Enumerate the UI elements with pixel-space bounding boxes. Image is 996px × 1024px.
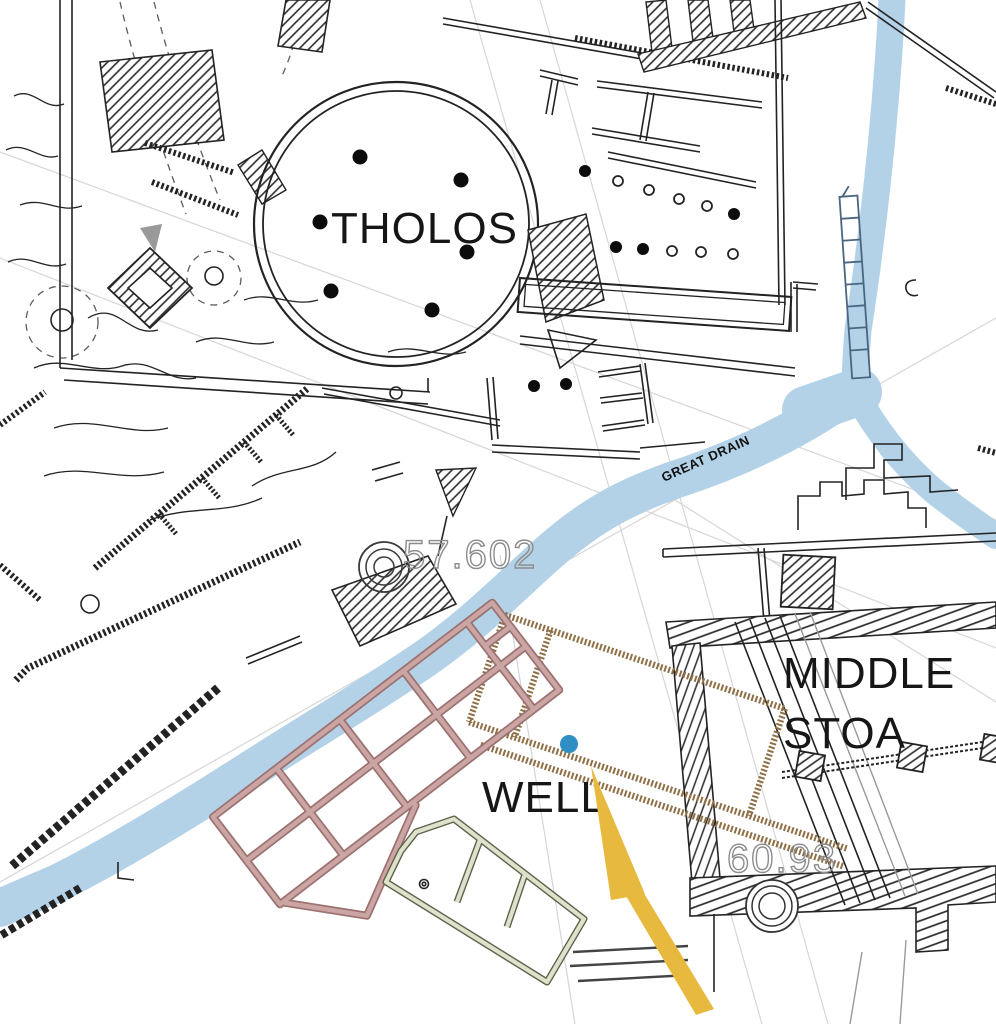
well-dot: [560, 735, 578, 753]
elevation-60-93: 60.93: [727, 837, 837, 881]
hatched-wall-block: [100, 50, 224, 152]
tholos-label: THOLOS: [331, 204, 518, 253]
agora-excavation-map: THOLOS: [0, 0, 996, 1024]
middle-stoa-label-line1: MIDDLE: [783, 649, 955, 698]
hatched-wall-block: [278, 0, 330, 52]
middle-stoa-label-line2: STOA: [783, 709, 906, 758]
stoa-well-rings: [746, 880, 798, 932]
well-label: WELL: [482, 773, 606, 822]
elevation-57-602: 57.602: [403, 533, 537, 577]
